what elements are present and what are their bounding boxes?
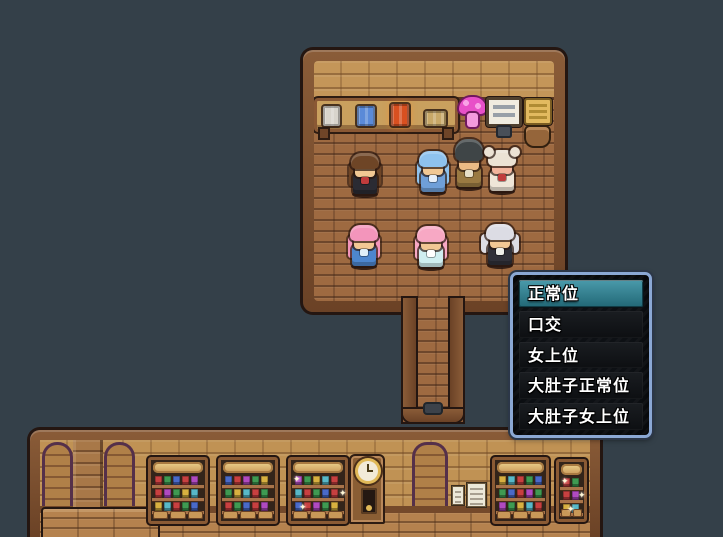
sparkle-icon: ✦ <box>339 490 347 499</box>
shelf-item-icon <box>535 489 542 498</box>
npc-part-hair <box>419 151 447 167</box>
bookshelf-small: ✦✦✦ <box>556 459 587 522</box>
menu-item-3[interactable]: 女上位 <box>519 342 643 369</box>
bookshelf-row <box>153 475 203 485</box>
shelf-item-icon <box>225 502 232 511</box>
npc-pink-hair-girl-blue[interactable] <box>346 212 382 270</box>
bookshelf-4 <box>492 457 549 524</box>
npc-part-hair <box>486 224 514 240</box>
shelf-item-icon <box>535 476 542 485</box>
bookshelf-header <box>497 462 544 473</box>
shelf-item-icon <box>517 476 524 485</box>
bookshelf-row <box>497 475 544 485</box>
shelf-item-icon <box>252 502 259 511</box>
shelf-item-icon <box>191 476 198 485</box>
shelf-item-icon <box>252 489 259 498</box>
corridor-wall-left <box>403 298 416 422</box>
drawer-icon <box>188 511 203 519</box>
sparkle-icon: ✦ <box>293 476 301 485</box>
board-line <box>493 105 515 109</box>
npc-part-accent <box>465 170 473 177</box>
shelf-item-icon <box>173 489 180 498</box>
shelf-item-icon <box>243 476 250 485</box>
bookshelf-row <box>153 501 203 511</box>
shelf-item-icon <box>322 476 329 485</box>
wall-note-icon <box>467 483 486 507</box>
shelf-item-icon <box>173 476 180 485</box>
npc-part-hair <box>455 139 483 161</box>
shelf-item-icon <box>252 476 259 485</box>
shelf-item-icon <box>331 476 338 485</box>
wood-pillar <box>73 440 103 513</box>
blue-crate-icon <box>357 106 375 126</box>
clock-pendulum <box>366 505 372 511</box>
plaque-line <box>529 116 547 119</box>
npc-part-hair <box>350 225 378 241</box>
menu-item-4[interactable]: 大肚子正常位 <box>519 372 643 399</box>
bookshelf-1 <box>148 457 208 524</box>
sparkle-icon: ✦ <box>578 492 586 501</box>
shelf-item-icon <box>331 489 338 498</box>
wall-arch-panel <box>104 442 135 506</box>
npc-part-hair <box>417 226 445 242</box>
red-crate-icon <box>391 104 409 126</box>
npc-pig-face-maid[interactable] <box>484 137 520 195</box>
game-screen: ✦✦✦✦✦✦ 正常位口交女上位大肚子正常位大肚子女上位 <box>0 0 723 537</box>
shelf-item-icon <box>243 502 250 511</box>
drawer-icon <box>497 511 511 519</box>
npc-part-accent <box>496 248 504 255</box>
bookshelf-drawers <box>497 511 544 519</box>
gold-plaque-icon <box>524 98 552 125</box>
pink-mushroom-icon <box>459 97 486 128</box>
npc-dark-pompadour-man[interactable] <box>451 133 487 191</box>
mushroom-stem <box>467 113 478 127</box>
npc-part-bun <box>510 147 520 157</box>
shelf-item-icon <box>164 489 171 498</box>
bookshelf-row <box>497 501 544 511</box>
display-cabinet <box>314 98 458 132</box>
shelf-item-icon <box>182 476 189 485</box>
bookshelf-row <box>153 488 203 498</box>
shelf-item-icon <box>155 502 162 511</box>
shelf-item-icon <box>499 476 506 485</box>
shelf-item-icon <box>164 502 171 511</box>
shelf-item-icon <box>508 476 515 485</box>
basket-icon <box>425 111 446 126</box>
shelf-item-icon <box>173 502 180 511</box>
menu-item-1[interactable]: 正常位 <box>519 280 643 307</box>
plaque-line <box>529 104 547 107</box>
shelf-item-icon <box>182 489 189 498</box>
npc-part-accent <box>360 249 368 256</box>
corridor-floor <box>416 298 450 416</box>
wall-note-icon <box>452 486 464 505</box>
bookshelf-row <box>223 475 273 485</box>
bookshelf-header <box>223 462 273 473</box>
npc-part-bun <box>484 147 494 157</box>
sparkle-icon: ✦ <box>561 478 569 487</box>
pot-icon <box>526 127 549 146</box>
white-crate-icon <box>323 106 340 126</box>
bookshelf-row <box>223 501 273 511</box>
drawer-icon <box>240 511 255 519</box>
shelf-item-icon <box>155 489 162 498</box>
shelf-item-icon <box>191 502 198 511</box>
bookshelf-row <box>293 488 343 498</box>
shelf-item-icon <box>313 502 320 511</box>
shelf-item-icon <box>225 476 232 485</box>
shelf-item-icon <box>155 476 162 485</box>
bookshelf-drawers <box>223 511 273 519</box>
shelf-item-icon <box>517 489 524 498</box>
drawer-icon <box>258 511 273 519</box>
shelf-item-icon <box>526 489 533 498</box>
shelf-item-icon <box>535 502 542 511</box>
bookshelf-drawers <box>153 511 203 519</box>
shelf-item-icon <box>261 489 268 498</box>
drawer-icon <box>170 511 185 519</box>
shelf-item-icon <box>572 478 579 487</box>
shop-room-interior: ✦✦✦✦✦✦ <box>40 440 590 537</box>
shelf-item-icon <box>331 502 338 511</box>
wall-arch-panel <box>42 442 73 506</box>
menu-item-2[interactable]: 口交 <box>519 311 643 338</box>
npc-part-hair <box>351 153 379 169</box>
shelf-item-icon <box>563 491 570 500</box>
drawer-icon <box>153 511 168 519</box>
board-line <box>493 113 515 117</box>
shelf-item-icon <box>234 502 241 511</box>
shelf-item-icon <box>499 502 506 511</box>
clock-face <box>358 461 378 481</box>
shelf-item-icon <box>243 489 250 498</box>
npc-silver-twintail-maid[interactable] <box>482 211 518 269</box>
bookshelf-header <box>293 462 343 473</box>
clock-pendulum-window <box>361 488 377 514</box>
plaque-line <box>529 110 547 113</box>
mushroom-cap <box>459 97 486 114</box>
bookshelf-header <box>153 462 203 473</box>
shelf-item-icon <box>191 489 198 498</box>
shelf-item-icon <box>508 502 515 511</box>
npc-part-accent <box>361 177 369 184</box>
shelf-item-icon <box>304 476 311 485</box>
wall-arch-panel <box>412 442 448 506</box>
shelf-item-icon <box>304 489 311 498</box>
bookshelf-2 <box>218 457 278 524</box>
shelf-item-icon <box>499 489 506 498</box>
shelf-item-icon <box>508 489 515 498</box>
bookshelf-3: ✦✦✦ <box>288 457 348 524</box>
shelf-item-icon <box>526 502 533 511</box>
drawer-icon <box>310 511 325 519</box>
cabinet-leg <box>320 129 328 138</box>
drawer-icon <box>223 511 238 519</box>
shelf-item-icon <box>313 476 320 485</box>
bookshelf-row <box>497 488 544 498</box>
shop-room: ✦✦✦✦✦✦ <box>30 430 600 537</box>
shelf-item-icon <box>182 502 189 511</box>
shelf-item-icon <box>164 476 171 485</box>
sparkle-icon: ✦ <box>567 506 575 515</box>
wall-menu-board-icon <box>486 97 522 127</box>
upper-room-wall <box>314 61 554 97</box>
drawer-icon <box>328 511 343 519</box>
shelf-item-icon <box>234 489 241 498</box>
action-choice-menu: 正常位口交女上位大肚子正常位大肚子女上位 <box>510 272 652 438</box>
npc-part-accent <box>427 250 435 257</box>
bookshelf-row <box>223 488 273 498</box>
board-stand <box>498 127 510 136</box>
shelf-item-icon <box>517 502 524 511</box>
shelf-item-icon <box>225 489 232 498</box>
shop-counter <box>43 509 158 537</box>
npc-pink-hair-girl-teal[interactable] <box>413 213 449 271</box>
npc-brown-hair-girl[interactable] <box>347 140 383 198</box>
sparkle-icon: ✦ <box>299 504 307 513</box>
corridor-wall-right <box>450 298 463 422</box>
npc-part-accent <box>498 174 506 181</box>
npc-part-accent <box>429 175 437 182</box>
npc-blue-hair-girl[interactable] <box>415 138 451 196</box>
clock-hand <box>367 470 373 472</box>
grandfather-clock-icon <box>349 454 385 524</box>
shelf-item-icon <box>322 489 329 498</box>
shelf-item-icon <box>295 489 302 498</box>
shelf-item-icon <box>234 476 241 485</box>
shelf-item-icon <box>526 476 533 485</box>
drawer-icon <box>530 511 544 519</box>
shelf-item-icon <box>313 489 320 498</box>
corridor <box>403 298 463 422</box>
shelf-item-icon <box>261 502 268 511</box>
corridor-doorway <box>425 404 441 413</box>
shelf-item-icon <box>322 502 329 511</box>
shelf-item-icon <box>261 476 268 485</box>
menu-item-5[interactable]: 大肚子女上位 <box>519 403 643 430</box>
bookshelf-header <box>561 464 582 475</box>
drawer-icon <box>513 511 527 519</box>
